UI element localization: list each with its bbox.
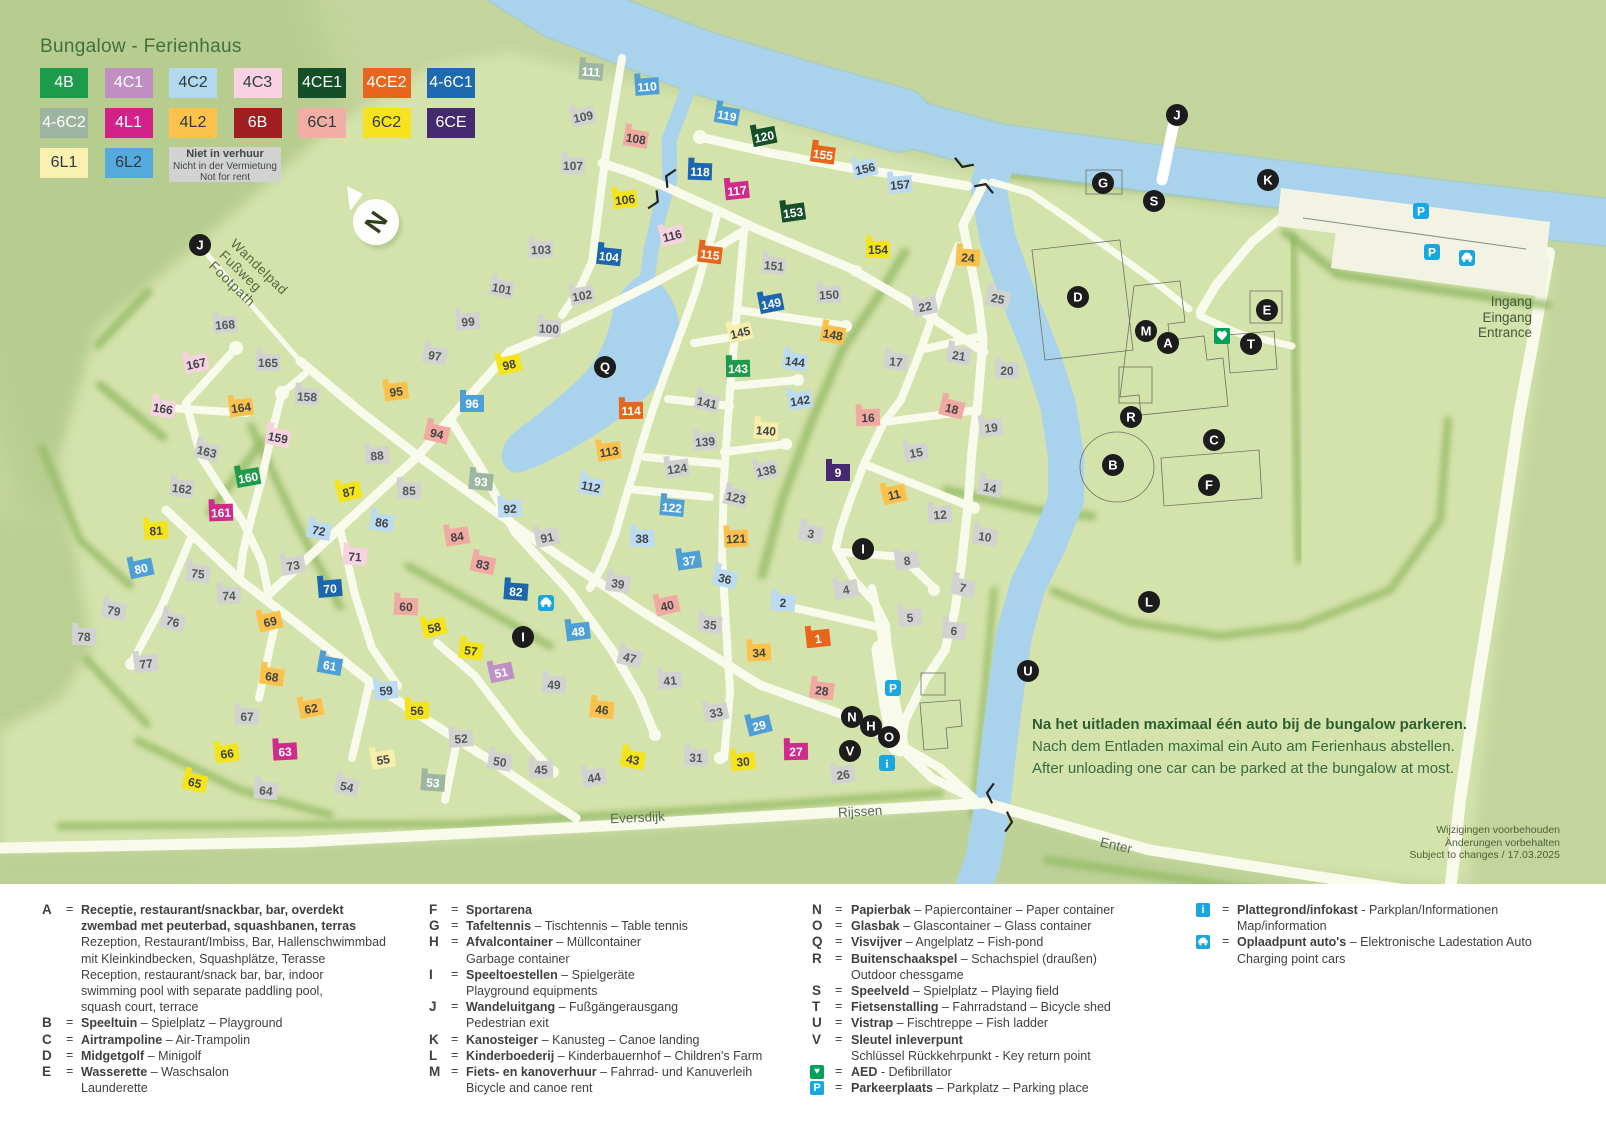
svg-text:64: 64	[259, 783, 274, 798]
svg-text:45: 45	[534, 763, 548, 777]
svg-text:118: 118	[690, 165, 710, 180]
svg-text:17: 17	[889, 354, 904, 369]
svg-text:37: 37	[682, 553, 697, 569]
svg-text:161: 161	[211, 506, 232, 521]
svg-text:J: J	[196, 238, 203, 253]
svg-text:71: 71	[348, 550, 362, 565]
svg-text:44: 44	[586, 770, 602, 786]
svg-text:144: 144	[784, 354, 806, 370]
svg-text:56: 56	[410, 704, 424, 718]
svg-text:100: 100	[539, 321, 560, 336]
svg-text:85: 85	[402, 484, 416, 498]
svg-text:O: O	[884, 730, 894, 745]
svg-text:59: 59	[379, 683, 394, 698]
svg-text:106: 106	[614, 192, 636, 208]
svg-text:93: 93	[474, 474, 489, 489]
svg-text:140: 140	[755, 423, 776, 438]
svg-text:P: P	[1417, 205, 1425, 219]
svg-text:21: 21	[951, 348, 967, 364]
svg-text:168: 168	[215, 317, 236, 332]
svg-text:31: 31	[689, 751, 703, 765]
svg-text:103: 103	[531, 243, 552, 258]
svg-text:E: E	[1263, 303, 1272, 318]
svg-text:U: U	[1023, 664, 1032, 679]
svg-text:V: V	[846, 744, 855, 759]
svg-text:73: 73	[285, 558, 301, 574]
svg-text:19: 19	[984, 420, 999, 436]
svg-text:J: J	[1173, 108, 1180, 123]
svg-text:M: M	[1141, 324, 1152, 339]
svg-text:P: P	[889, 682, 897, 696]
svg-text:50: 50	[492, 754, 508, 770]
svg-text:P: P	[1428, 246, 1436, 260]
svg-text:20: 20	[1000, 364, 1014, 378]
svg-text:164: 164	[230, 400, 252, 416]
svg-text:49: 49	[547, 678, 561, 692]
svg-text:D: D	[1073, 290, 1082, 305]
svg-text:96: 96	[465, 397, 479, 411]
svg-text:9: 9	[835, 466, 842, 480]
svg-text:28: 28	[814, 683, 829, 699]
svg-text:35: 35	[703, 617, 718, 632]
svg-text:157: 157	[889, 177, 910, 193]
svg-text:30: 30	[736, 754, 751, 769]
svg-text:95: 95	[389, 384, 404, 400]
svg-text:Q: Q	[600, 360, 610, 375]
svg-text:34: 34	[752, 646, 766, 661]
svg-text:15: 15	[908, 445, 924, 461]
svg-text:52: 52	[454, 732, 469, 747]
svg-text:H: H	[866, 719, 875, 734]
svg-text:92: 92	[503, 502, 517, 517]
svg-text:27: 27	[789, 745, 803, 759]
svg-text:68: 68	[264, 669, 279, 685]
svg-text:5: 5	[906, 611, 914, 625]
svg-text:G: G	[1098, 176, 1108, 191]
svg-text:139: 139	[695, 434, 716, 449]
svg-text:60: 60	[399, 600, 413, 614]
svg-text:99: 99	[461, 314, 476, 329]
svg-text:84: 84	[449, 529, 465, 545]
svg-text:88: 88	[370, 448, 385, 463]
svg-text:114: 114	[621, 404, 641, 418]
svg-text:41: 41	[663, 673, 678, 688]
svg-text:24: 24	[961, 251, 976, 266]
svg-text:10: 10	[977, 529, 992, 545]
svg-text:66: 66	[220, 746, 235, 762]
svg-text:63: 63	[278, 745, 292, 760]
svg-text:57: 57	[463, 643, 478, 659]
svg-text:S: S	[1150, 194, 1159, 209]
svg-text:162: 162	[171, 481, 193, 497]
svg-text:115: 115	[699, 247, 720, 263]
svg-text:143: 143	[728, 362, 749, 376]
svg-text:75: 75	[191, 566, 206, 581]
svg-text:107: 107	[563, 159, 584, 173]
svg-text:26: 26	[835, 767, 851, 783]
svg-text:F: F	[1205, 478, 1213, 493]
svg-text:38: 38	[635, 532, 649, 546]
svg-text:111: 111	[581, 64, 601, 79]
svg-text:46: 46	[595, 702, 610, 717]
svg-text:153: 153	[782, 205, 804, 222]
svg-text:L: L	[1145, 595, 1153, 610]
svg-text:82: 82	[509, 585, 524, 600]
svg-text:70: 70	[323, 581, 338, 596]
svg-text:165: 165	[258, 356, 279, 370]
svg-text:I: I	[521, 630, 525, 645]
svg-text:2: 2	[779, 596, 786, 610]
svg-text:150: 150	[819, 287, 840, 302]
svg-text:77: 77	[139, 656, 154, 672]
svg-text:110: 110	[637, 79, 658, 94]
svg-text:I: I	[861, 542, 865, 557]
svg-text:67: 67	[240, 710, 254, 724]
svg-text:117: 117	[727, 183, 748, 199]
svg-text:74: 74	[222, 589, 236, 603]
svg-text:A: A	[1163, 336, 1173, 351]
svg-text:53: 53	[426, 776, 441, 791]
svg-text:T: T	[1247, 337, 1255, 352]
svg-text:124: 124	[666, 461, 688, 478]
svg-text:39: 39	[610, 576, 625, 592]
svg-text:121: 121	[726, 531, 747, 546]
svg-text:155: 155	[812, 147, 834, 164]
svg-text:158: 158	[297, 389, 318, 404]
svg-text:81: 81	[149, 524, 164, 539]
svg-text:N: N	[847, 710, 856, 725]
svg-text:78: 78	[77, 630, 91, 644]
svg-text:12: 12	[933, 507, 948, 522]
svg-text:55: 55	[375, 752, 391, 768]
svg-text:86: 86	[374, 515, 389, 531]
svg-text:97: 97	[427, 348, 442, 364]
svg-text:B: B	[1108, 458, 1117, 473]
svg-text:C: C	[1209, 433, 1219, 448]
svg-text:16: 16	[861, 411, 875, 425]
svg-text:151: 151	[763, 258, 784, 274]
svg-text:122: 122	[661, 500, 682, 516]
svg-text:61: 61	[322, 658, 338, 674]
svg-text:R: R	[1126, 410, 1136, 425]
svg-text:48: 48	[571, 624, 586, 640]
svg-text:104: 104	[598, 249, 620, 265]
svg-text:K: K	[1263, 173, 1273, 188]
svg-text:79: 79	[106, 603, 122, 619]
svg-text:154: 154	[868, 243, 888, 257]
